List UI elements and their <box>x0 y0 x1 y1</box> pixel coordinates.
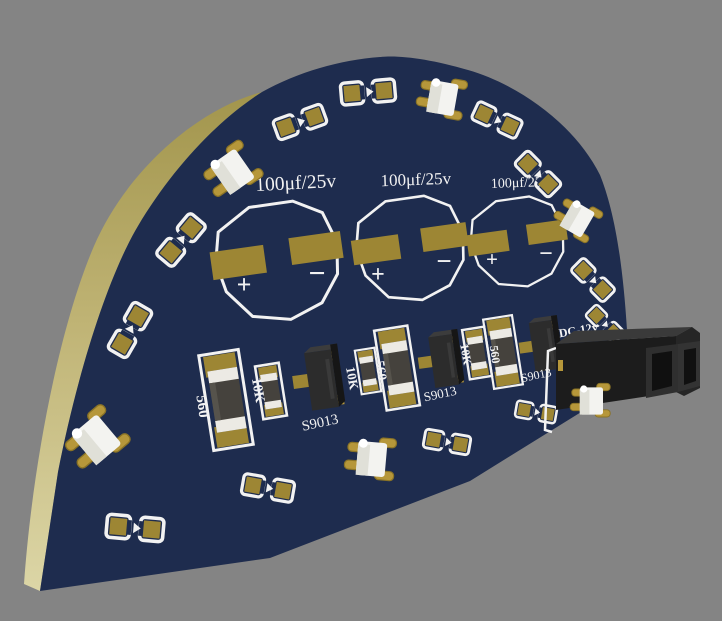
silkscreen-label-cap1: 100μf/25v <box>255 171 337 196</box>
silkscreen-polarity-plus-2: + <box>371 262 385 288</box>
silkscreen-label-560-1: 560 <box>192 394 211 419</box>
silkscreen-polarity-minus-3: − <box>539 241 553 267</box>
silkscreen-label-560-2: 560 <box>373 360 391 381</box>
pcb-render-canvas: 100μf/25v 100μf/25v 100μf/25v + − + − + … <box>0 0 722 621</box>
silkscreen-label-560-3: 560 <box>487 345 503 365</box>
dc-jack-contact <box>558 360 563 371</box>
silkscreen-polarity-minus-2: − <box>436 246 451 276</box>
dc-jack-socket-2-hole <box>684 348 696 385</box>
pcb-3d-viewport[interactable]: 100μf/25v 100μf/25v 100μf/25v + − + − + … <box>0 0 722 621</box>
silkscreen-polarity-plus-3: + <box>486 247 498 271</box>
silkscreen-label-cap2: 100μf/25v <box>380 169 452 190</box>
dc-jack-socket-1-hole <box>652 351 672 391</box>
silkscreen-polarity-minus-1: − <box>308 257 325 290</box>
silkscreen-polarity-plus-1: + <box>237 270 252 299</box>
